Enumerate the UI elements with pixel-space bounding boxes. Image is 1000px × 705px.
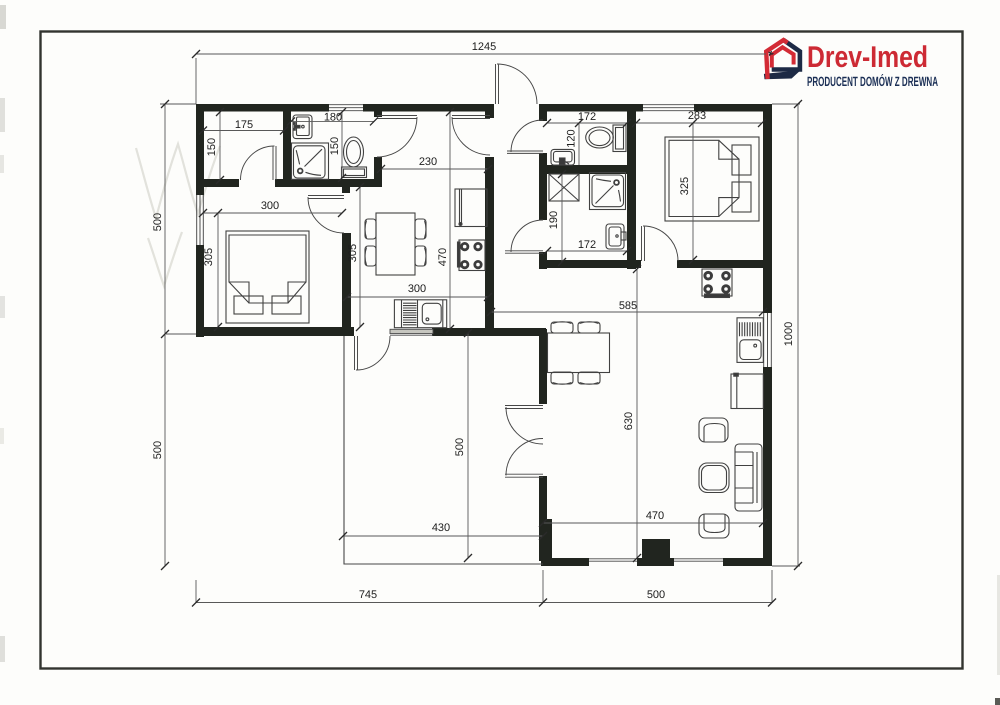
svg-text:500: 500 — [152, 441, 164, 459]
svg-text:325: 325 — [679, 177, 691, 195]
svg-text:300: 300 — [408, 283, 426, 295]
svg-text:430: 430 — [432, 522, 450, 534]
svg-text:585: 585 — [619, 300, 637, 312]
svg-text:470: 470 — [437, 248, 449, 266]
svg-text:120: 120 — [566, 129, 578, 147]
svg-text:745: 745 — [359, 589, 377, 601]
svg-text:470: 470 — [646, 510, 664, 522]
svg-text:150: 150 — [206, 138, 218, 156]
svg-text:305: 305 — [203, 248, 215, 266]
svg-text:300: 300 — [261, 200, 279, 212]
svg-text:305: 305 — [347, 244, 359, 262]
svg-text:172: 172 — [578, 239, 596, 251]
svg-text:175: 175 — [235, 119, 253, 131]
svg-text:500: 500 — [454, 438, 466, 456]
svg-text:230: 230 — [419, 156, 437, 168]
svg-text:500: 500 — [647, 589, 665, 601]
svg-text:1245: 1245 — [472, 41, 496, 53]
svg-text:PRODUCENT DOMÓW Z DREWNA: PRODUCENT DOMÓW Z DREWNA — [807, 74, 938, 89]
svg-text:1000: 1000 — [783, 322, 795, 346]
svg-text:190: 190 — [548, 211, 560, 229]
svg-text:283: 283 — [688, 110, 706, 122]
svg-text:150: 150 — [329, 137, 341, 155]
svg-text:630: 630 — [623, 412, 635, 430]
svg-text:500: 500 — [152, 213, 164, 231]
svg-text:180: 180 — [324, 112, 342, 124]
svg-text:Drev-Imed: Drev-Imed — [807, 41, 928, 74]
